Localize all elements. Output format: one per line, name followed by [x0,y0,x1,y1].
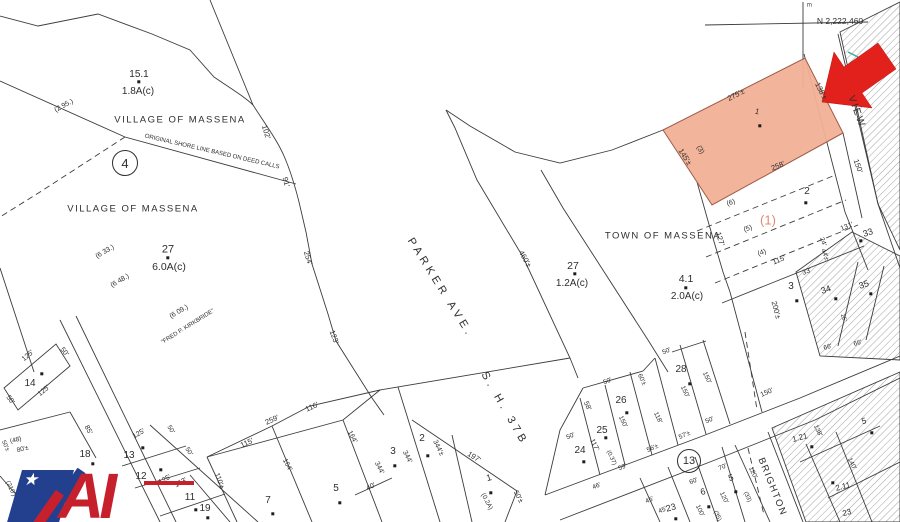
highlighted-parcel[interactable] [663,58,843,205]
auction-logo[interactable]: ★ AI [6,462,206,522]
star-icon: ★ [21,470,42,490]
logo-underline [144,481,194,485]
logo-text: AI [58,468,112,522]
tax-map-canvas: 15.11.8A(c)VILLAGE OF MASSENA(2 95.)ORIG… [0,0,900,522]
map-linework [0,0,900,522]
